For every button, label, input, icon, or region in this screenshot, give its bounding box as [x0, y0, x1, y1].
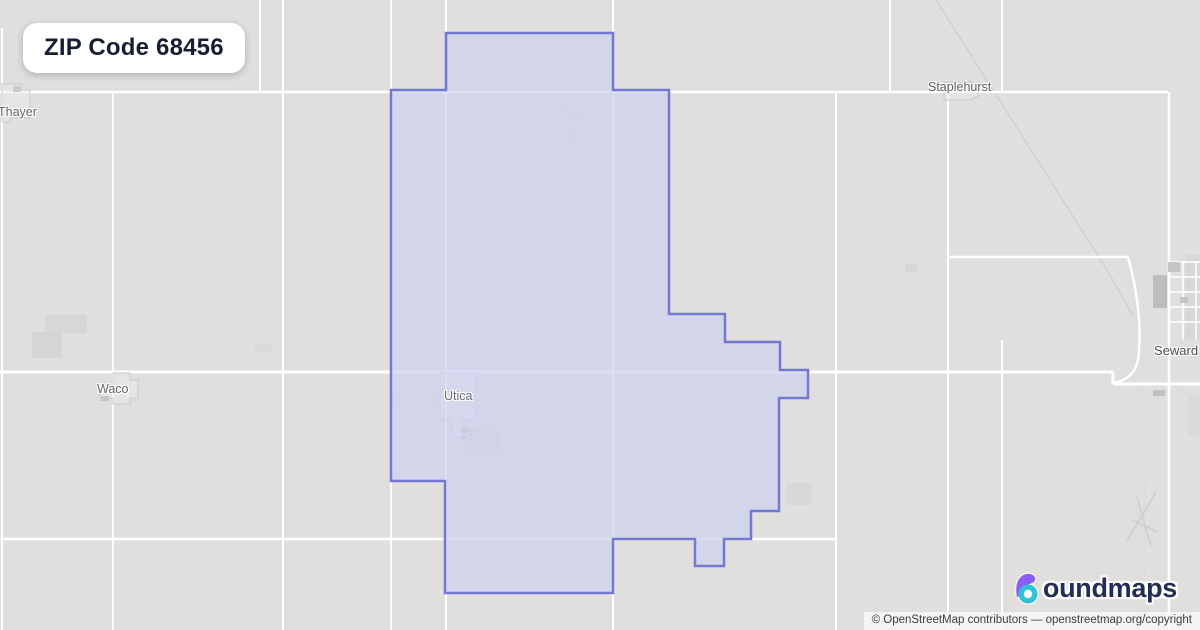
- zip-title-text: ZIP Code 68456: [44, 34, 224, 62]
- osm-attribution-text: © OpenStreetMap contributors — openstree…: [872, 614, 1192, 626]
- boundmaps-logo-icon: [1011, 571, 1043, 605]
- place-label-staplehurst: Staplehurst: [928, 80, 991, 94]
- place-label-seward: Seward: [1154, 343, 1198, 358]
- map-canvas[interactable]: [0, 0, 1200, 630]
- place-label-waco: Waco: [97, 382, 129, 396]
- boundmaps-logo-text: oundmaps: [1043, 575, 1177, 602]
- zip-title-badge: ZIP Code 68456: [23, 23, 245, 73]
- boundmaps-logo[interactable]: oundmaps: [1011, 571, 1177, 605]
- place-label-utica: Utica: [444, 389, 472, 403]
- osm-attribution[interactable]: © OpenStreetMap contributors — openstree…: [864, 612, 1200, 630]
- place-label-thayer: Thayer: [0, 105, 37, 119]
- map-stage: Thayer Waco Utica Staplehurst Seward ZIP…: [0, 0, 1200, 630]
